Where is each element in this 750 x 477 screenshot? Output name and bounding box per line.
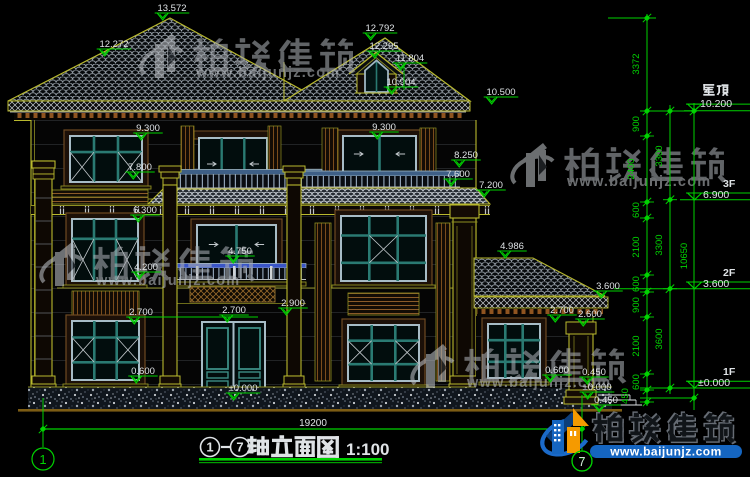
svg-text:6.300: 6.300 — [133, 205, 157, 216]
svg-text:0.450: 0.450 — [594, 395, 618, 406]
svg-text:0.600: 0.600 — [131, 366, 155, 377]
svg-text:9.300: 9.300 — [136, 123, 160, 134]
svg-text:3372: 3372 — [631, 53, 642, 74]
svg-text:10.200: 10.200 — [700, 98, 732, 110]
svg-text:7: 7 — [236, 440, 243, 455]
svg-text:1:100: 1:100 — [346, 440, 389, 459]
svg-text:3.600: 3.600 — [596, 281, 620, 292]
svg-text:0.600: 0.600 — [545, 365, 569, 376]
svg-text:www.baijunjz.com: www.baijunjz.com — [609, 445, 722, 459]
svg-text:11.804: 11.804 — [396, 53, 424, 64]
svg-text:12.295: 12.295 — [369, 41, 398, 52]
svg-text:7: 7 — [579, 455, 586, 469]
svg-text:www.baijunjz.com: www.baijunjz.com — [95, 273, 240, 289]
svg-text:450: 450 — [620, 388, 631, 404]
svg-text:4.750: 4.750 — [228, 246, 252, 257]
svg-text:900: 900 — [631, 297, 642, 313]
svg-text:2.700: 2.700 — [129, 307, 153, 318]
svg-text:2100: 2100 — [631, 335, 642, 356]
svg-text:19200: 19200 — [299, 418, 327, 429]
svg-text:3.600: 3.600 — [703, 278, 729, 290]
svg-text:2.600: 2.600 — [578, 309, 602, 320]
svg-text:1: 1 — [39, 452, 46, 467]
svg-text:±0.000: ±0.000 — [229, 383, 258, 394]
svg-text:3300: 3300 — [654, 145, 665, 166]
svg-text:3600: 3600 — [654, 328, 665, 349]
svg-text:1: 1 — [206, 440, 213, 455]
svg-text:10.500: 10.500 — [486, 87, 515, 98]
svg-text:±0.000: ±0.000 — [698, 377, 730, 389]
svg-text:6.900: 6.900 — [703, 189, 729, 201]
svg-text:4.200: 4.200 — [134, 262, 158, 273]
svg-text:9.300: 9.300 — [372, 122, 396, 133]
svg-text:600: 600 — [631, 276, 642, 292]
svg-text:600: 600 — [631, 202, 642, 218]
svg-text:www.baijunjz.com: www.baijunjz.com — [566, 174, 711, 190]
svg-text:2.700: 2.700 — [222, 305, 246, 316]
svg-text:8.250: 8.250 — [454, 150, 478, 161]
svg-text:7.200: 7.200 — [479, 180, 503, 191]
svg-text:2400: 2400 — [626, 158, 637, 179]
svg-text:www.baijunjz.com: www.baijunjz.com — [195, 65, 340, 81]
svg-text:±0.000: ±0.000 — [583, 382, 612, 393]
svg-text:2.700: 2.700 — [550, 305, 574, 316]
svg-text:2.900: 2.900 — [281, 298, 305, 309]
svg-text:0.450: 0.450 — [582, 367, 606, 378]
svg-text:7.600: 7.600 — [446, 169, 470, 180]
svg-text:7.800: 7.800 — [128, 162, 152, 173]
svg-text:4.986: 4.986 — [500, 241, 524, 252]
svg-text:900: 900 — [631, 116, 642, 132]
svg-text:12.272: 12.272 — [99, 39, 128, 50]
svg-text:10650: 10650 — [679, 243, 690, 269]
svg-text:12.792: 12.792 — [365, 23, 394, 34]
svg-text:13.572: 13.572 — [157, 3, 186, 14]
svg-text:3300: 3300 — [654, 234, 665, 255]
svg-text:10.904: 10.904 — [386, 77, 415, 88]
svg-text:2100: 2100 — [631, 236, 642, 257]
